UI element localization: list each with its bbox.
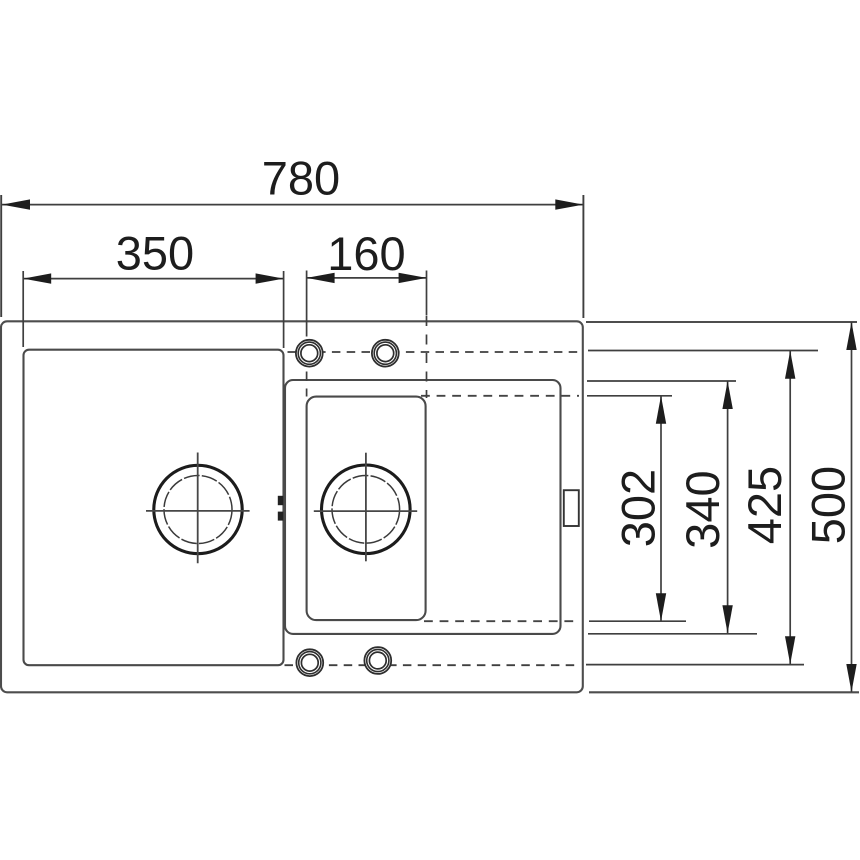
svg-text:160: 160 (327, 227, 405, 280)
svg-text:425: 425 (738, 466, 791, 544)
svg-text:780: 780 (262, 152, 340, 205)
svg-text:302: 302 (612, 469, 665, 547)
svg-text:500: 500 (801, 466, 854, 544)
svg-text:350: 350 (116, 227, 194, 280)
svg-text:340: 340 (676, 470, 729, 548)
